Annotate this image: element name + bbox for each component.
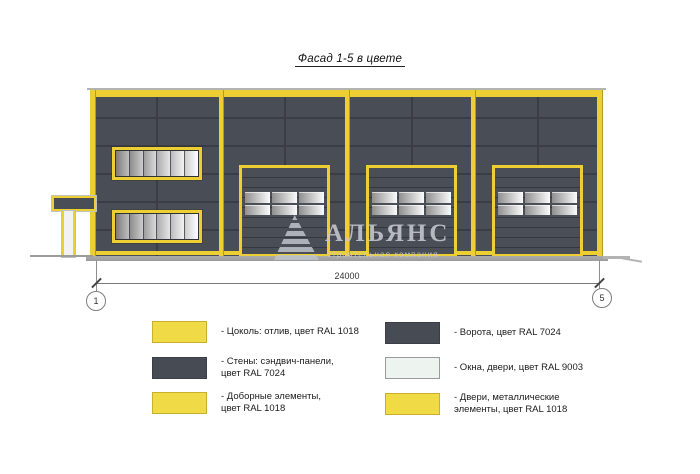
legend-swatch-plinth: [152, 321, 207, 343]
legend-label-walls: - Стены: сэндвич-панели, цвет RAL 7024: [221, 356, 334, 380]
legend-item-plinth: - Цоколь: отлив, цвет RAL 1018: [152, 321, 359, 343]
door-window-pane: [245, 192, 270, 203]
door-window-pane: [525, 205, 550, 216]
ground-line-left: [30, 255, 93, 257]
door-window-pane: [426, 192, 451, 203]
legend-swatch-metal-doors: [385, 393, 440, 415]
overhead-door-2: [366, 165, 457, 257]
door-window-grid: [245, 192, 324, 215]
door-window-pane: [299, 192, 324, 203]
pilaster-corner-left: [90, 90, 96, 256]
door-window-pane: [372, 192, 397, 203]
door-window-grid: [372, 192, 451, 215]
window-pane: [143, 214, 157, 239]
window-band-upper: [112, 147, 202, 180]
window-pane: [116, 151, 129, 176]
window-pane: [170, 214, 184, 239]
drawing-title: Фасад 1-5 в цвете: [295, 53, 405, 67]
legend-item-metal-doors: - Двери, металлические элементы, цвет RA…: [385, 392, 567, 416]
door-window-pane: [498, 205, 523, 216]
door-window-pane: [399, 192, 424, 203]
door-window-pane: [372, 205, 397, 216]
door-window-pane: [552, 192, 577, 203]
door-window-pane: [426, 205, 451, 216]
legend-swatch-walls: [152, 357, 207, 379]
legend-item-walls: - Стены: сэндвич-панели, цвет RAL 7024: [152, 356, 334, 380]
drawing-sheet: Фасад 1-5 в цвете: [0, 0, 700, 474]
window-pane: [129, 214, 143, 239]
legend-swatch-trim-elements: [152, 392, 207, 414]
window-pane: [156, 151, 170, 176]
overhead-door-3: [492, 165, 583, 257]
window-pane: [184, 151, 198, 176]
axis-marker-1: 1: [86, 291, 106, 311]
pilaster-axis-3: [345, 90, 350, 256]
foundation-strip: [86, 256, 608, 261]
axis-marker-5: 5: [592, 288, 612, 308]
door-leaf: [369, 168, 454, 254]
door-window-pane: [245, 205, 270, 216]
window-pane: [129, 151, 143, 176]
canopy-post: [62, 211, 75, 257]
window-pane: [170, 151, 184, 176]
window-pane: [116, 214, 129, 239]
window-pane: [184, 214, 198, 239]
entrance-canopy: [52, 196, 96, 211]
extension-line-left: [96, 261, 97, 292]
legend-label-gates: - Ворота, цвет RAL 7024: [454, 327, 561, 339]
door-window-pane: [299, 205, 324, 216]
legend-label-metal-doors: - Двери, металлические элементы, цвет RA…: [454, 392, 567, 416]
door-window-grid: [498, 192, 577, 215]
legend-label-plinth: - Цоколь: отлив, цвет RAL 1018: [221, 326, 359, 338]
overhead-door-1: [239, 165, 330, 257]
door-window-pane: [399, 205, 424, 216]
pilaster-axis-4: [471, 90, 476, 256]
window-pane: [143, 151, 157, 176]
dimension-line: [96, 283, 600, 284]
door-leaf: [495, 168, 580, 254]
legend-swatch-windows-doors: [385, 357, 440, 379]
legend-swatch-gates: [385, 322, 440, 344]
window-glazing: [115, 213, 199, 240]
door-window-pane: [525, 192, 550, 203]
dimension-value: 24000: [297, 271, 397, 281]
legend-item-trim-elements: - Доборные элементы, цвет RAL 1018: [152, 391, 321, 415]
door-window-pane: [272, 192, 297, 203]
door-window-pane: [498, 192, 523, 203]
pilaster-corner-right: [597, 90, 603, 256]
legend-item-windows-doors: - Окна, двери, цвет RAL 9003: [385, 357, 583, 379]
window-pane: [156, 214, 170, 239]
door-window-pane: [552, 205, 577, 216]
drawing-title-row: Фасад 1-5 в цвете: [0, 49, 700, 67]
legend-label-windows-doors: - Окна, двери, цвет RAL 9003: [454, 362, 583, 374]
window-glazing: [115, 150, 199, 177]
window-band-lower: [112, 210, 202, 243]
door-window-pane: [272, 205, 297, 216]
ground-slope-line: [622, 257, 642, 262]
legend-label-trim-elements: - Доборные элементы, цвет RAL 1018: [221, 391, 321, 415]
pilaster-axis-2: [219, 90, 224, 256]
legend-item-gates: - Ворота, цвет RAL 7024: [385, 322, 561, 344]
door-leaf: [242, 168, 327, 254]
